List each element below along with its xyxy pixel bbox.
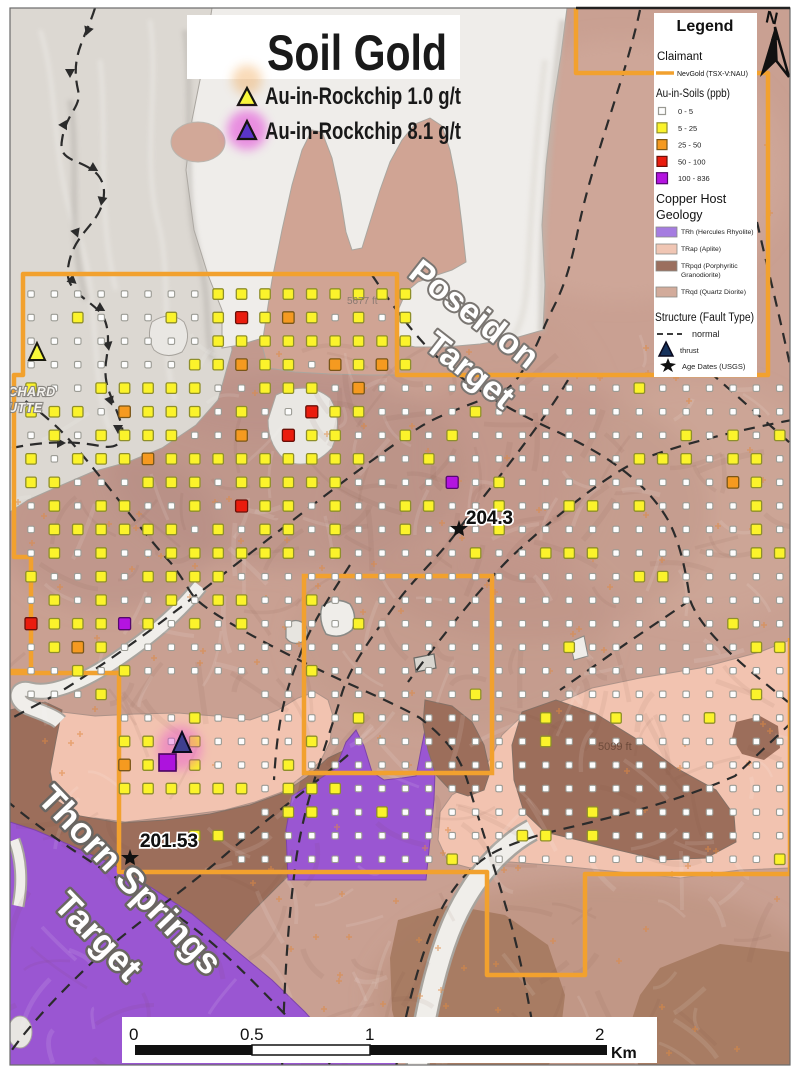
svg-text:Au-in-Soils (ppb): Au-in-Soils (ppb) (656, 86, 730, 100)
svg-text:25 - 50: 25 - 50 (678, 141, 701, 150)
svg-text:Legend: Legend (677, 18, 734, 35)
svg-text:TRpqd (Porphyritic: TRpqd (Porphyritic (681, 263, 738, 270)
svg-text:Copper Host: Copper Host (656, 192, 727, 206)
svg-text:Soil Gold: Soil Gold (267, 25, 447, 81)
svg-text:TRqd (Quartz Diorite): TRqd (Quartz Diorite) (681, 289, 746, 296)
svg-text:204.3: 204.3 (466, 508, 513, 529)
svg-text:5 - 25: 5 - 25 (678, 124, 697, 133)
svg-text:1: 1 (365, 1025, 374, 1044)
svg-text:0: 0 (129, 1025, 138, 1044)
svg-text:UTTE: UTTE (8, 401, 43, 415)
svg-text:TRap (Aplite): TRap (Aplite) (681, 246, 721, 253)
svg-text:5099 ft: 5099 ft (598, 741, 632, 753)
svg-text:NevGold (TSX-V:NAU): NevGold (TSX-V:NAU) (677, 71, 748, 78)
svg-text:Granodiorite): Granodiorite) (681, 272, 721, 279)
svg-text:0.5: 0.5 (240, 1025, 264, 1044)
svg-text:201.53: 201.53 (140, 831, 198, 852)
svg-text:Au-in-Rockchip 1.0 g/t: Au-in-Rockchip 1.0 g/t (265, 83, 461, 110)
svg-text:Structure (Fault Type): Structure (Fault Type) (655, 312, 754, 324)
svg-text:CHARD: CHARD (8, 385, 56, 399)
svg-text:Km: Km (611, 1045, 637, 1062)
svg-text:0 - 5: 0 - 5 (678, 107, 693, 116)
svg-text:Claimant: Claimant (657, 51, 703, 63)
svg-text:TRh (Hercules Rhyolite): TRh (Hercules Rhyolite) (681, 229, 754, 236)
svg-text:5677 ft: 5677 ft (347, 296, 378, 307)
svg-text:thrust: thrust (680, 346, 700, 355)
svg-text:2: 2 (595, 1025, 604, 1044)
svg-text:normal: normal (692, 329, 720, 339)
svg-text:50 - 100: 50 - 100 (678, 157, 706, 166)
svg-text:100 - 836: 100 - 836 (678, 174, 710, 183)
svg-text:Geology: Geology (656, 208, 703, 222)
svg-text:Au-in-Rockchip 8.1 g/t: Au-in-Rockchip 8.1 g/t (265, 118, 461, 145)
svg-text:Age Dates (USGS): Age Dates (USGS) (682, 362, 746, 371)
